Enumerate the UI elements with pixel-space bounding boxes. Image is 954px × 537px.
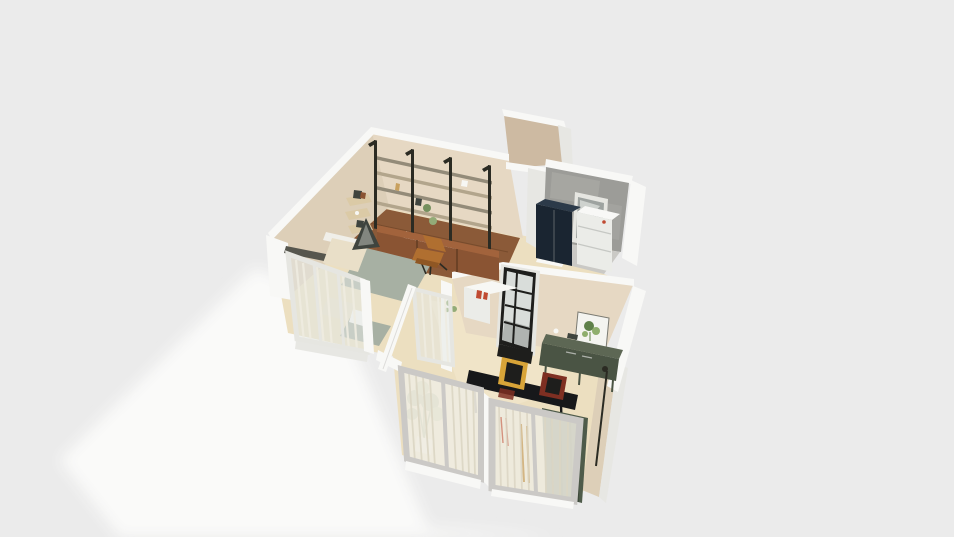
sliding-window-unit-rear	[400, 369, 481, 489]
steel-frame-window	[496, 264, 540, 364]
sliding-window-unit-front	[491, 402, 580, 509]
cabinet-plant	[429, 217, 437, 225]
utility-room	[536, 167, 629, 274]
floorplan-stage	[0, 0, 954, 537]
floorplan-3d-canvas[interactable]	[0, 0, 954, 537]
